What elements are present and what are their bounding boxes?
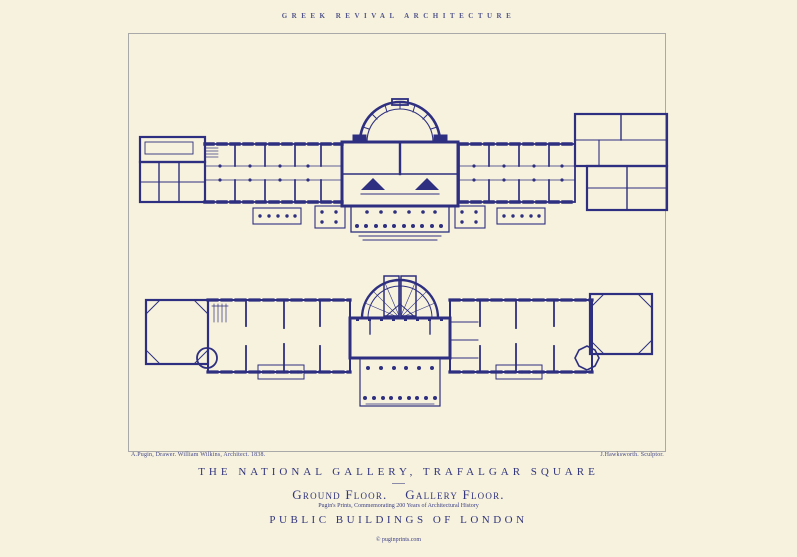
credit-engraver: J.Hawksworth. Sculptor. xyxy=(600,452,664,458)
left-gallery-wing xyxy=(208,300,350,372)
right-end-room xyxy=(575,294,652,370)
dome-stair xyxy=(362,276,438,318)
ground-floor-plan xyxy=(129,98,669,250)
gallery-floor-plan xyxy=(138,264,662,414)
right-gallery-wing xyxy=(450,300,592,372)
right-pavilion xyxy=(575,114,667,210)
left-end-room xyxy=(146,300,217,368)
title-divider xyxy=(392,483,405,484)
portico xyxy=(315,206,485,240)
poster-header-title: GREEK REVIVAL ARCHITECTURE xyxy=(0,12,797,20)
ground-floor-plan-drawing xyxy=(129,98,669,250)
left-wing xyxy=(205,144,342,202)
side-colonnades xyxy=(253,208,545,224)
series-title: PUBLIC BUILDINGS OF LONDON xyxy=(0,514,797,526)
floor-caption: Ground Floor. Gallery Floor. xyxy=(0,487,797,503)
copyright: © puginprints.com xyxy=(0,537,797,543)
central-block xyxy=(342,142,458,206)
right-wing xyxy=(459,144,575,202)
portico-columns xyxy=(363,366,437,400)
plate-title: THE NATIONAL GALLERY, TRAFALGAR SQUARE xyxy=(0,466,797,478)
apse-dome xyxy=(353,99,447,143)
grand-portico xyxy=(360,358,440,406)
poster: GREEK REVIVAL ARCHITECTURE xyxy=(0,0,797,557)
left-pavilion xyxy=(140,137,205,202)
credit-delineator: A.Pugin, Drawer. William Wilkins, Archit… xyxy=(131,452,265,458)
gallery-floor-plan-drawing xyxy=(138,264,662,414)
portico-columns xyxy=(355,210,443,228)
central-hall xyxy=(350,318,450,358)
series-note: Pugin's Prints, Commemorating 200 Years … xyxy=(0,503,797,509)
